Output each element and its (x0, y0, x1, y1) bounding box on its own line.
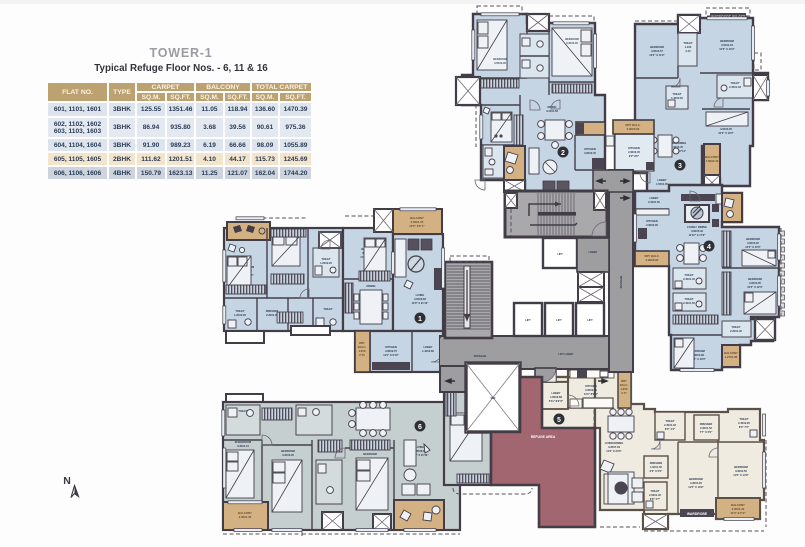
svg-text:1.27X1.80: 1.27X1.80 (725, 355, 738, 359)
svg-text:LIVING / DINING: LIVING / DINING (687, 225, 707, 229)
svg-text:12'0" X 10'0": 12'0" X 10'0" (745, 245, 761, 249)
svg-text:1.40X: 1.40X (685, 45, 692, 49)
svg-text:3.35X3.05: 3.35X3.05 (282, 453, 294, 457)
svg-text:1.40X2.20: 1.40X2.20 (671, 96, 683, 100)
svg-text:3.60X5.40: 3.60X5.40 (691, 229, 703, 233)
svg-text:KITCHEN: KITCHEN (584, 147, 596, 151)
svg-text:11'0" X 13'9": 11'0" X 13'9" (688, 485, 704, 489)
svg-text:BEDROOM: BEDROOM (720, 39, 734, 43)
svg-text:TOILET: TOILET (684, 297, 694, 301)
svg-text:2.90X0.90: 2.90X0.90 (627, 127, 640, 131)
svg-text:2.40X1.32: 2.40X1.32 (664, 423, 676, 427)
svg-text:2.20X1.40: 2.20X1.40 (730, 329, 742, 333)
svg-text:KITCHEN: KITCHEN (385, 345, 397, 349)
svg-text:6'0" X 5'0": 6'0" X 5'0" (650, 469, 663, 473)
svg-text:1.50X2.40: 1.50X2.40 (706, 159, 719, 163)
svg-text:2.45X2.20: 2.45X2.20 (738, 421, 750, 425)
svg-text:LIVING: LIVING (416, 293, 425, 297)
svg-text:WARDROBE: WARDROBE (687, 512, 708, 516)
svg-text:12'0" X 21'10": 12'0" X 21'10" (412, 301, 430, 305)
svg-text:TOILET: TOILET (321, 257, 331, 261)
svg-text:LOBBY: LOBBY (423, 345, 432, 349)
svg-text:BEDROOM: BEDROOM (650, 45, 664, 49)
svg-text:6'8" 4'7": 6'8" 4'7" (650, 497, 661, 501)
svg-text:KITCHEN: KITCHEN (646, 219, 658, 223)
svg-text:PASSAGE: PASSAGE (619, 275, 623, 288)
svg-text:11'10" X 17'9": 11'10" X 17'9" (689, 233, 707, 237)
svg-text:DRESSER: DRESSER (266, 309, 279, 313)
svg-text:TOILET: TOILET (683, 41, 693, 45)
svg-text:LIVING/DINING: LIVING/DINING (605, 441, 623, 445)
svg-text:6: 6 (418, 424, 422, 431)
svg-text:3.05X3.57: 3.05X3.57 (651, 49, 663, 53)
svg-text:LIFT: LIFT (587, 318, 593, 322)
svg-text:BEDROOM: BEDROOM (748, 277, 762, 281)
svg-text:DRESSER: DRESSER (650, 461, 663, 465)
svg-text:MID: MID (491, 396, 496, 400)
svg-text:1.20X2.20: 1.20X2.20 (234, 313, 246, 317)
svg-text:3.30X4.20: 3.30X4.20 (690, 481, 702, 485)
svg-text:11'0" X 14'9": 11'0" X 14'9" (733, 473, 749, 477)
svg-text:2.90X2.45: 2.90X2.45 (628, 150, 640, 154)
svg-text:3.05X3.35: 3.05X3.35 (494, 61, 506, 65)
svg-text:TOILET: TOILET (650, 489, 660, 493)
svg-text:1.50X1.35: 1.50X1.35 (656, 182, 668, 186)
svg-text:2.40: 2.40 (685, 49, 691, 53)
svg-text:DRESSER: DRESSER (700, 422, 713, 426)
svg-text:1.40X2.80: 1.40X2.80 (422, 349, 434, 353)
svg-text:TOILET: TOILET (731, 325, 741, 329)
svg-text:4: 4 (707, 244, 711, 251)
svg-text:9'2" 8'0": 9'2" 8'0" (629, 154, 640, 158)
svg-text:LOBBY: LOBBY (657, 178, 666, 182)
svg-text:1.80X2.88: 1.80X2.88 (550, 395, 562, 399)
svg-text:8'0" 4'4": 8'0" 4'4" (665, 427, 676, 431)
svg-text:3.30X4.50: 3.30X4.50 (735, 469, 747, 473)
svg-text:TOILET: TOILET (323, 307, 333, 311)
svg-text:2.45X1.32: 2.45X1.32 (729, 85, 741, 89)
svg-text:11'0" 9'4"0": 11'0" 9'4"0" (730, 511, 746, 515)
svg-text:BEDROOM: BEDROOM (493, 57, 507, 61)
svg-text:LIFT LOBBY: LIFT LOBBY (558, 352, 574, 356)
svg-text:BEDROOM: BEDROOM (281, 449, 295, 453)
svg-text:3.30X4.37: 3.30X4.37 (237, 444, 249, 448)
svg-text:BEDROOM: BEDROOM (363, 452, 377, 456)
svg-text:DINING: DINING (366, 284, 375, 288)
svg-text:11'0" 8'9"4": 11'0" 8'9"4" (584, 392, 599, 396)
svg-text:7'7" X 5'0": 7'7" X 5'0" (700, 430, 713, 434)
svg-text:12'0" 3'6"1": 12'0" 3'6"1" (409, 224, 425, 228)
svg-text:3: 3 (678, 163, 682, 170)
svg-text:2.77: 2.77 (621, 391, 627, 395)
svg-text:3.00X2.45: 3.00X2.45 (584, 151, 596, 155)
svg-text:KITCHEN: KITCHEN (585, 384, 597, 388)
svg-text:3.15X1.56: 3.15X1.56 (546, 109, 558, 113)
svg-text:3.35X7.03: 3.35X7.03 (608, 445, 620, 449)
svg-text:LIVING: LIVING (416, 445, 425, 449)
svg-text:1: 1 (418, 316, 422, 323)
svg-text:1.84X1.50: 1.84X1.50 (650, 465, 662, 469)
svg-text:3.35X3.35: 3.35X3.35 (566, 41, 578, 45)
svg-text:LIFT: LIFT (557, 252, 563, 256)
svg-text:LOBBY: LOBBY (551, 391, 560, 395)
svg-text:2.40X1.50: 2.40X1.50 (683, 301, 695, 305)
svg-text:TOILET: TOILET (684, 273, 694, 277)
svg-text:3.60X6.66: 3.60X6.66 (414, 297, 426, 301)
svg-text:12'0" X 13'3": 12'0" X 13'3" (719, 47, 735, 51)
svg-text:BEDROOM: BEDROOM (565, 37, 579, 41)
svg-text:11'0" X 23'0": 11'0" X 23'0" (606, 449, 622, 453)
svg-text:TOILET: TOILET (665, 419, 675, 423)
svg-text:5'11" 8'9"9": 5'11" 8'9"9" (549, 399, 564, 403)
svg-text:10'0" X 10'0": 10'0" X 10'0" (718, 131, 734, 135)
svg-text:TOILET: TOILET (730, 81, 740, 85)
svg-text:LOBBY: LOBBY (649, 196, 658, 200)
svg-text:8'0" 7'3": 8'0" 7'3" (739, 425, 750, 429)
svg-text:2.00X1.52: 2.00X1.52 (700, 426, 712, 430)
svg-text:BEDROOM: BEDROOM (734, 465, 748, 469)
svg-text:TOILET: TOILET (238, 409, 248, 413)
svg-text:3.64X4.04: 3.64X4.04 (721, 43, 733, 47)
svg-text:2.75: 2.75 (359, 353, 365, 357)
svg-text:3.60X3.05: 3.60X3.05 (747, 241, 759, 245)
svg-text:BEDROOM: BEDROOM (746, 237, 760, 241)
svg-text:2.90X0.90: 2.90X0.90 (646, 258, 659, 262)
svg-text:REFUGE AREA: REFUGE AREA (531, 435, 556, 439)
svg-text:2.40X1.50: 2.40X1.50 (648, 200, 660, 204)
svg-text:LIFT: LIFT (525, 318, 531, 322)
svg-text:3.00X3.05: 3.00X3.05 (749, 281, 761, 285)
svg-text:10'0" X 12'0": 10'0" X 12'0" (747, 285, 763, 289)
svg-text:LOBBY: LOBBY (588, 250, 597, 254)
svg-text:3.35X2.30: 3.35X2.30 (585, 388, 597, 392)
svg-text:3.05X3.05: 3.05X3.05 (720, 127, 732, 131)
svg-text:KITCHEN: KITCHEN (628, 146, 640, 150)
svg-text:2.03X1.40: 2.03X1.40 (649, 493, 661, 497)
svg-text:11'0" X 9'10": 11'0" X 9'10" (383, 353, 399, 357)
svg-text:LIFT: LIFT (556, 318, 562, 322)
svg-text:2.40X1.40: 2.40X1.40 (683, 277, 695, 281)
svg-text:3.66X2.75: 3.66X2.75 (385, 349, 397, 353)
svg-text:N: N (63, 475, 71, 487)
svg-text:TOILET: TOILET (672, 92, 682, 96)
svg-text:2: 2 (561, 150, 565, 157)
svg-text:PASSAGE: PASSAGE (474, 354, 487, 358)
svg-text:TOILET: TOILET (235, 309, 245, 313)
svg-text:2.00X1.05: 2.00X1.05 (239, 515, 252, 519)
svg-text:10'0" X 11'9": 10'0" X 11'9" (649, 53, 665, 57)
svg-text:BEDROOM: BEDROOM (689, 477, 703, 481)
svg-text:1.20X2.20: 1.20X2.20 (320, 261, 332, 265)
svg-text:2.90X2.90: 2.90X2.90 (646, 223, 658, 227)
svg-text:TOILET: TOILET (739, 417, 749, 421)
svg-text:5: 5 (557, 417, 561, 424)
